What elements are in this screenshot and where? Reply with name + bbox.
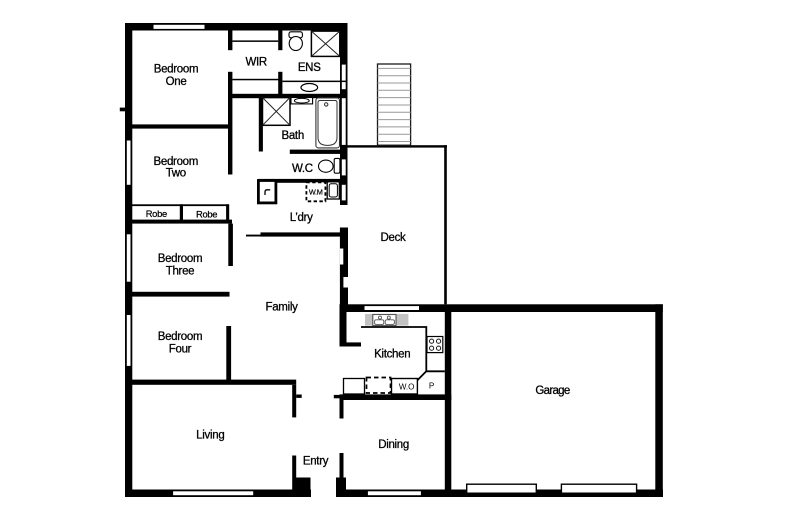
svg-text:W.C: W.C [292, 163, 313, 175]
svg-text:Entry: Entry [303, 455, 329, 467]
svg-text:Dining: Dining [378, 439, 409, 451]
svg-text:One: One [166, 76, 187, 88]
svg-text:W.M: W.M [309, 187, 323, 196]
svg-text:Bedroom: Bedroom [158, 331, 203, 343]
svg-text:ENS: ENS [298, 62, 321, 74]
svg-text:Living: Living [196, 429, 224, 441]
svg-text:W.O: W.O [399, 383, 415, 392]
svg-text:WIR: WIR [245, 56, 266, 68]
svg-text:Bath: Bath [281, 130, 303, 142]
svg-text:Three: Three [166, 266, 195, 278]
svg-text:Bedroom: Bedroom [158, 253, 203, 265]
svg-text:Bedroom: Bedroom [154, 156, 199, 168]
svg-text:Four: Four [169, 343, 192, 355]
svg-text:L’dry: L’dry [290, 212, 313, 224]
svg-text:Two: Two [166, 168, 186, 180]
svg-text:Family: Family [265, 302, 298, 314]
svg-text:P: P [429, 382, 435, 391]
svg-text:Robe: Robe [196, 209, 217, 220]
svg-text:Deck: Deck [380, 232, 406, 244]
svg-text:Robe: Robe [146, 208, 167, 219]
svg-text:Garage: Garage [535, 385, 569, 397]
svg-text:Kitchen: Kitchen [374, 349, 410, 361]
svg-text:Bedroom: Bedroom [154, 63, 199, 75]
